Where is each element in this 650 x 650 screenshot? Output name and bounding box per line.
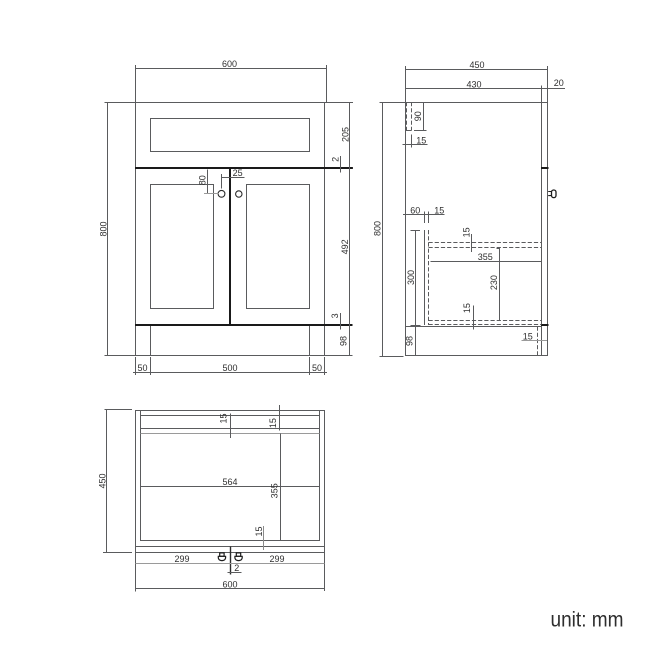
svg-text:355: 355: [270, 483, 280, 498]
svg-text:2: 2: [234, 563, 239, 573]
svg-text:unit: mm: unit: mm: [551, 608, 624, 632]
svg-text:430: 430: [466, 79, 481, 89]
svg-text:15: 15: [434, 205, 444, 215]
svg-text:450: 450: [97, 473, 107, 488]
svg-text:299: 299: [269, 554, 284, 564]
svg-text:15: 15: [218, 413, 228, 423]
svg-text:800: 800: [372, 221, 382, 236]
svg-text:80: 80: [197, 175, 207, 185]
svg-text:15: 15: [268, 418, 278, 428]
svg-text:50: 50: [137, 363, 147, 373]
svg-text:205: 205: [340, 127, 350, 142]
svg-text:600: 600: [222, 59, 237, 69]
svg-text:600: 600: [222, 579, 237, 589]
svg-text:355: 355: [478, 252, 493, 262]
svg-text:230: 230: [489, 275, 499, 290]
svg-text:15: 15: [523, 331, 533, 341]
svg-text:492: 492: [340, 239, 350, 254]
svg-text:25: 25: [233, 168, 243, 178]
svg-text:15: 15: [462, 227, 472, 237]
svg-text:60: 60: [410, 205, 420, 215]
svg-text:98: 98: [404, 336, 414, 346]
svg-text:800: 800: [98, 221, 108, 236]
svg-text:15: 15: [462, 303, 472, 313]
svg-text:15: 15: [254, 526, 264, 536]
svg-text:3: 3: [330, 313, 340, 318]
svg-text:300: 300: [406, 270, 416, 285]
svg-text:500: 500: [222, 363, 237, 373]
svg-text:50: 50: [312, 363, 322, 373]
svg-text:98: 98: [339, 336, 349, 346]
svg-text:299: 299: [174, 554, 189, 564]
svg-text:90: 90: [413, 111, 423, 121]
svg-text:564: 564: [222, 477, 237, 487]
svg-text:15: 15: [416, 135, 426, 145]
svg-text:2: 2: [330, 157, 340, 162]
svg-text:450: 450: [469, 60, 484, 70]
svg-text:20: 20: [554, 78, 564, 88]
